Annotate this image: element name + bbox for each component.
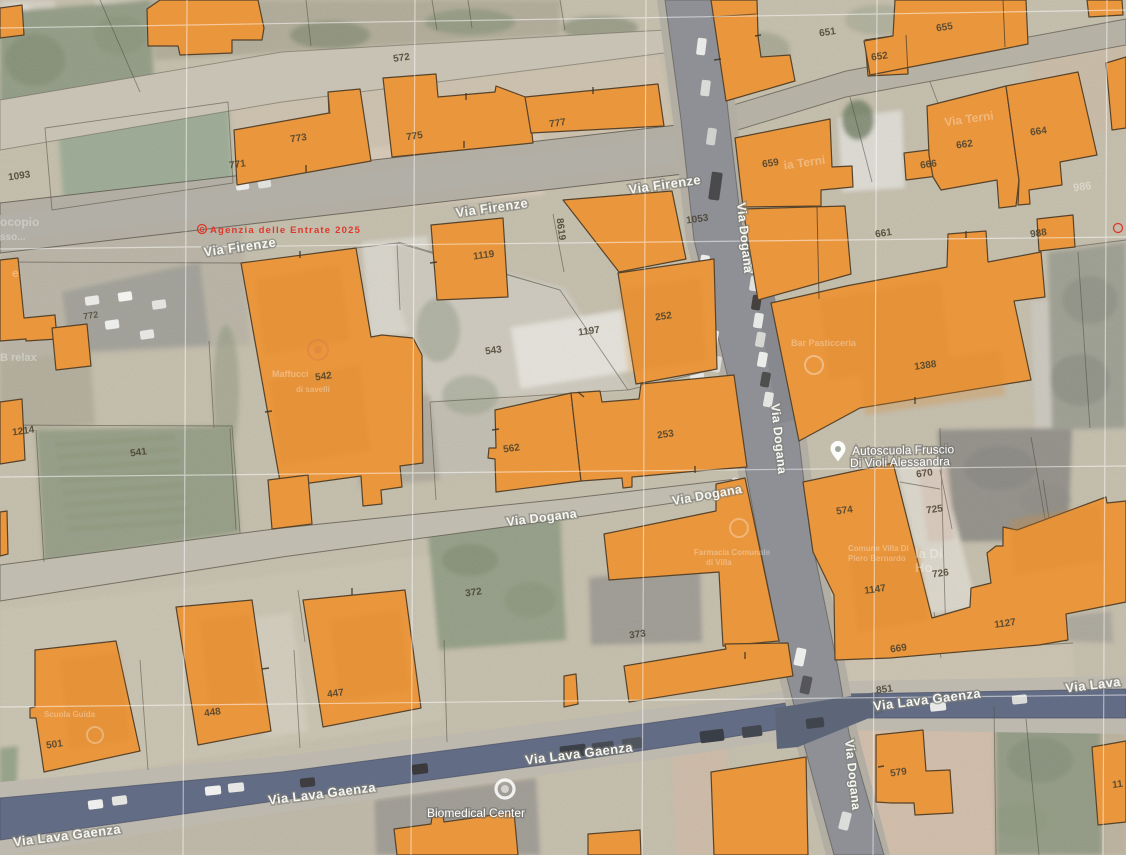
svg-text:B relax: B relax [0,352,38,364]
svg-text:ocopio: ocopio [0,215,39,229]
svg-text:Farmacia Comunale: Farmacia Comunale [694,548,771,557]
svg-text:Piero Bernardo: Piero Bernardo [848,554,906,563]
svg-text:Maffucci: Maffucci [272,369,309,379]
svg-text:la Di: la Di [915,546,942,561]
svg-text:11: 11 [1112,779,1124,791]
svg-text:986: 986 [1072,180,1092,194]
svg-text:Scuola Guida: Scuola Guida [44,710,96,719]
svg-text:e: e [12,266,19,280]
svg-text:Di Violi Alessandra: Di Violi Alessandra [850,454,950,470]
svg-text:Ho: Ho [915,560,932,575]
svg-text:C: C [200,227,205,234]
svg-text:di savelli: di savelli [296,385,330,394]
svg-text:di Villa: di Villa [706,558,732,567]
svg-text:772: 772 [83,309,99,321]
svg-text:Bar Pasticceria: Bar Pasticceria [791,338,857,348]
svg-text:Comune Villa Di: Comune Villa Di [848,544,909,553]
svg-text:Biomedical Center: Biomedical Center [427,806,525,820]
svg-text:sso...: sso... [0,232,26,243]
svg-text:Agenzia delle Entrate 2025: Agenzia delle Entrate 2025 [210,225,361,236]
